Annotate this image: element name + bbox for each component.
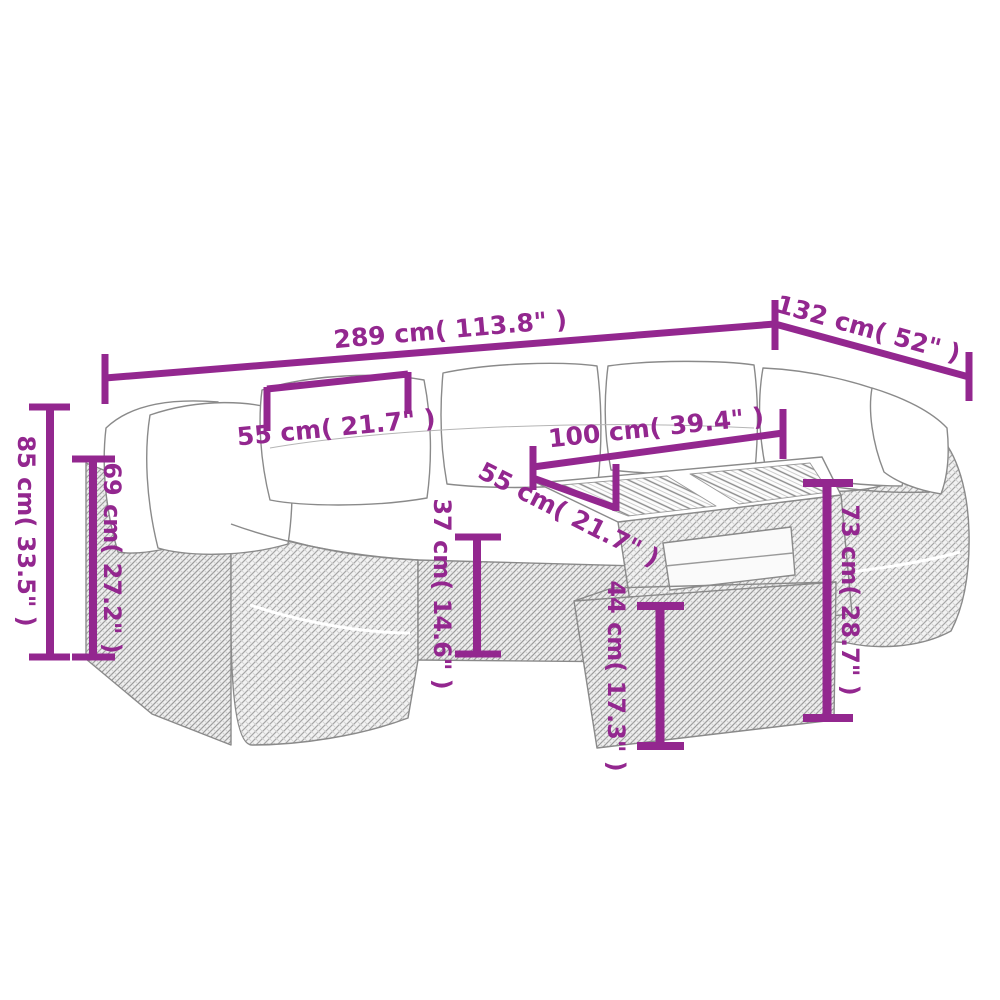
dim-backrest-height-label: 69 cm( 27.2" ) xyxy=(98,462,126,653)
dim-footstool-height-label: 44 cm( 17.3" ) xyxy=(602,580,630,771)
diagram-canvas: 289 cm( 113.8" ) 132 cm( 52" ) 55 cm( 21… xyxy=(0,0,1000,1000)
dim-overall-height: 85 cm( 33.5" ) xyxy=(12,407,70,657)
dim-backrest-height: 69 cm( 27.2" ) xyxy=(72,459,126,657)
dim-table-height-label: 73 cm( 28.7" ) xyxy=(836,504,864,695)
dim-overall-height-label: 85 cm( 33.5" ) xyxy=(12,435,40,626)
dim-seat-height-label: 37 cm( 14.6" ) xyxy=(428,498,456,689)
dimension-diagram: 289 cm( 113.8" ) 132 cm( 52" ) 55 cm( 21… xyxy=(0,0,1000,1000)
